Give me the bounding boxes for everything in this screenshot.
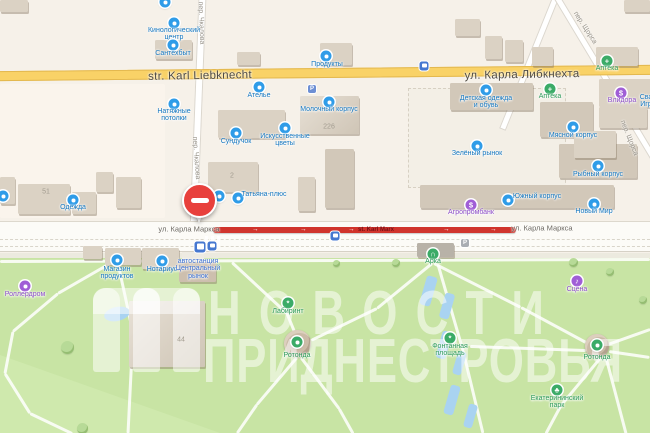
poi-label[interactable]: Мясной корпус [549,132,597,139]
poi-label[interactable]: Новый Мир [575,208,612,215]
bld-m2 [116,177,141,208]
bus-station-icon[interactable] [195,242,206,253]
poi-label[interactable]: Южный корпус [513,193,561,200]
no-entry-bar [191,198,209,204]
tree-icon [569,258,578,267]
house-number: 51 [42,189,50,196]
market-icon[interactable] [503,195,514,206]
poi-label[interactable]: Фонтанная [432,343,468,350]
shop-icon[interactable] [231,128,242,139]
flower-icon[interactable] [280,123,291,134]
direction-arrow-icon: → [443,227,450,233]
poi-label[interactable]: Центральный [176,265,220,272]
poi-label[interactable]: Ротонда [584,354,611,361]
poi-label[interactable]: продуктов [101,273,134,280]
bld-m3 [298,177,315,211]
street-karl-liebknecht-en: str. Karl Liebknecht [148,69,252,83]
tree-icon [333,260,340,267]
shop-icon[interactable] [160,0,171,8]
poi-label[interactable]: Кинологический [148,27,200,34]
house-number: 44 [177,337,185,344]
bld-t4 [505,40,523,62]
bus-icon[interactable] [331,232,340,241]
poi-label[interactable]: рынок [188,273,208,280]
poi-label[interactable]: Сва [640,94,650,101]
notary-icon[interactable] [157,256,168,267]
poi-label[interactable]: автостанция [178,258,219,265]
poi-label[interactable]: Аптека [596,65,619,72]
bld-t3 [485,36,502,59]
poi-label[interactable]: цветы [275,140,295,147]
tree-icon [392,259,400,267]
shop-icon[interactable] [112,255,123,266]
market-icon[interactable] [593,161,604,172]
tree-icon [77,423,88,433]
poi-label[interactable]: Влидора [608,97,636,104]
poi-label[interactable]: Молочный корпус [300,106,358,113]
poi-label[interactable]: Татьяна-плюс [241,191,286,198]
market-icon[interactable] [568,122,579,133]
poi-label[interactable]: Ротонда [284,352,311,359]
poi-label[interactable]: Магазин [103,266,130,273]
house-number: 226 [323,124,335,131]
bld-m4 [325,149,354,208]
maze-icon[interactable]: * [283,298,294,309]
direction-arrow-icon: → [348,227,355,233]
street-karla-marksa-right: ул. Карла Маркса [511,224,572,233]
music-icon[interactable]: ♪ [572,276,583,287]
poi-label[interactable]: Зелёный рынок [452,150,502,157]
poi-label[interactable]: Сантехбыт [155,50,190,57]
skate-icon[interactable] [20,281,31,292]
landmark-icon[interactable] [592,340,603,351]
bld-m1 [96,172,113,192]
bus-icon[interactable] [420,62,429,71]
shop-icon[interactable] [321,51,332,62]
clothes-icon[interactable] [481,85,492,96]
street-karla-marksa-left: ул. Карла Маркса [158,225,219,234]
poi-label[interactable]: и обувь [474,102,498,109]
poi-label[interactable]: Продукты [311,61,343,68]
scissors-icon[interactable] [254,82,265,93]
parking-icon[interactable]: P [461,239,469,247]
lane-marking [0,239,650,240]
poi-label[interactable]: Роллердром [5,291,46,298]
direction-arrow-icon: → [490,227,497,233]
poi-label[interactable]: Детская одежда [460,95,512,102]
poi-label[interactable]: Искусственные [260,133,310,140]
tree-icon [61,341,74,354]
tree-icon [606,268,614,276]
bld-t5 [532,47,553,66]
bld-top-right [624,0,650,12]
poi-label[interactable]: Ателье [248,92,271,99]
poi-label[interactable]: Сундучок [221,138,252,145]
parking-icon[interactable]: P [308,85,316,93]
poi-label[interactable]: Екатерининский [531,395,583,402]
poi-label[interactable]: Сцена [567,286,588,293]
house-number: 2 [230,173,234,180]
poi-label[interactable]: Агропромбанк [448,209,494,216]
poi-label[interactable]: Аптека [539,93,562,100]
bld-top-left [0,0,28,12]
poi-label[interactable]: потолки [161,115,186,122]
poi-label[interactable]: Одежда [60,204,86,211]
map-canvas[interactable]: →→→→→st. Karl Marx НОВОСТИ ПРИДНЕСТРОВЬЯ… [0,0,650,433]
street-chkalova-top: пер. Чкалова [197,1,205,44]
direction-arrow-icon: → [300,227,307,233]
direction-arrow-icon: → [252,227,259,233]
tree-icon[interactable]: ♣ [552,385,563,396]
poi-label[interactable]: площадь [435,350,464,357]
poi-label[interactable]: Нотариус [147,266,178,273]
landmark-icon[interactable] [292,337,303,348]
poi-label[interactable]: Рыбный корпус [573,171,623,178]
shop-icon[interactable] [168,40,179,51]
tree-icon [639,296,647,304]
street-karla-libknehta-ru: ул. Карла Либкнехта [464,68,579,82]
closed-road-label: st. Karl Marx [358,227,394,233]
poi-label[interactable]: Лабиринт [272,308,303,315]
bld-s1 [83,246,102,259]
bld-t1 [237,52,260,65]
bld-t2 [455,19,480,36]
poi-label[interactable]: Натяжные [157,108,190,115]
bld-s2 [105,248,141,265]
bld-44 [129,301,205,367]
fountain-icon[interactable]: * [445,333,456,344]
bus-icon[interactable] [208,242,217,251]
poi-label[interactable]: Арка [425,258,441,265]
poi-label[interactable]: парк [550,402,565,409]
poi-label[interactable]: Игр [640,101,650,108]
